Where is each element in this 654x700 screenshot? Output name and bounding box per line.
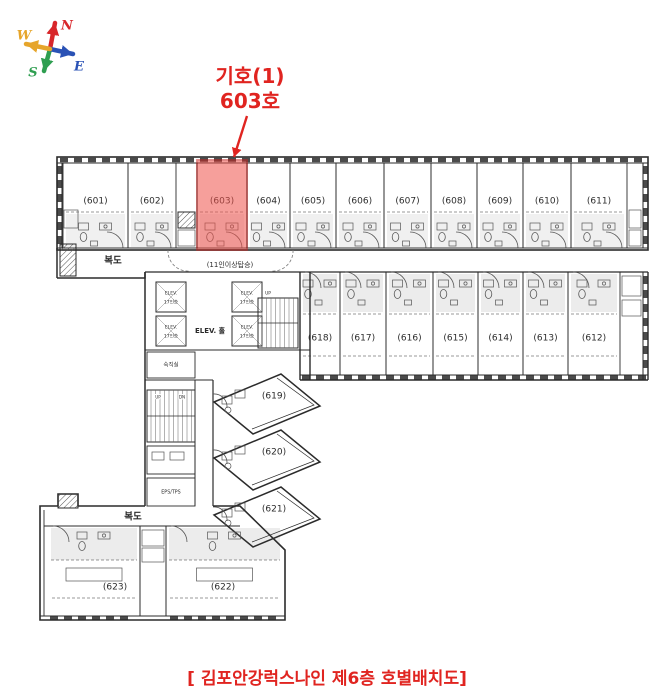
plan-label: (618) — [308, 334, 332, 344]
elevator-capacity-label: 17인승 — [240, 333, 254, 340]
mid-wing: (618)(617)(616)(615)(614)(613)(612) — [300, 272, 648, 380]
plan-label: (620) — [262, 448, 286, 458]
plan-label: (623) — [103, 583, 127, 593]
room-606: (606) — [336, 163, 384, 248]
top-wing: (601)(602)(603)(604)(605)(606)(607)(608)… — [57, 157, 648, 250]
room-620: (620) — [213, 430, 320, 490]
plan-label: (622) — [211, 583, 235, 593]
plan-label: (614) — [488, 334, 512, 344]
service-room: EPS/TPS — [147, 478, 195, 506]
highlighted-room-603 — [197, 160, 247, 250]
room-604: (604) — [247, 163, 290, 248]
room-608: (608) — [431, 163, 477, 248]
annotation-arrow — [234, 116, 247, 157]
plan-label: DN — [179, 395, 185, 400]
plan-label: (607) — [395, 197, 419, 207]
plan-label: (609) — [488, 197, 512, 207]
elevator-car-label: ELEV. — [241, 291, 253, 297]
page-caption: [ 김포안강럭스나인 제6층 호별배치도] — [0, 664, 654, 689]
compass-west-arrow — [26, 44, 50, 49]
room-622: (622) — [169, 526, 280, 598]
highlight-603 — [197, 116, 247, 250]
corridor-label: 복도 — [124, 512, 142, 523]
plan-label: UP — [265, 291, 271, 297]
elevator-capacity-label: 17인승 — [240, 299, 254, 306]
room-605: (605) — [290, 163, 336, 248]
plan-label: (616) — [397, 334, 421, 344]
room-619: (619) — [213, 374, 320, 434]
room-613: (613) — [523, 272, 568, 375]
annotation-line2: 603호 — [188, 89, 312, 114]
plan-label: (610) — [535, 197, 559, 207]
compass-rose: NSEW — [17, 19, 85, 81]
service-room-label: EPS/TPS — [161, 490, 180, 496]
room-615: (615) — [433, 272, 478, 375]
room-623: (623) — [51, 526, 137, 598]
room-610: (610) — [523, 163, 571, 248]
plan-label: (617) — [351, 334, 375, 344]
room-611: (611) — [571, 163, 627, 248]
compass-n-label: N — [60, 19, 74, 34]
plan-label: (602) — [140, 197, 164, 207]
plan-label: (612) — [582, 334, 606, 344]
plan-label: (619) — [262, 392, 286, 402]
room-618: (618) — [300, 272, 340, 375]
elevator-shaft: ELEV.17인승 — [156, 316, 186, 346]
plan-label: (608) — [442, 197, 466, 207]
plan-label: (601) — [83, 197, 107, 207]
floor-plan-drawing: (601)(602)(603)(604)(605)(606)(607)(608)… — [0, 0, 654, 700]
room-602: (602) — [128, 163, 176, 248]
annotation-unit-603: 기호(1) 603호 — [188, 64, 312, 114]
plan-label: (606) — [348, 197, 372, 207]
stair-lower: UPUPDNDN — [147, 390, 195, 442]
elevator-capacity-label: 17인승 — [164, 333, 178, 340]
core: ELEV.17인승ELEV.17인승ELEV.17인승ELEV.17인승ELEV… — [145, 272, 310, 506]
plan-label: (613) — [533, 334, 557, 344]
compass-s-label: S — [28, 66, 37, 81]
room-612: (612) — [568, 272, 620, 375]
room-607: (607) — [384, 163, 431, 248]
room-616: (616) — [386, 272, 433, 375]
plan-label: (615) — [443, 334, 467, 344]
elevator-car-label: ELEV. — [165, 291, 177, 297]
duty-room-label: 숙직실 — [163, 361, 178, 369]
room-609: (609) — [477, 163, 523, 248]
plan-label: (611) — [587, 197, 611, 207]
room-614: (614) — [478, 272, 523, 375]
plan-label: UP — [155, 395, 161, 400]
bottom-wing: 복도(623)(622) — [40, 494, 285, 620]
room-601: (601) — [63, 163, 128, 248]
plan-label: (605) — [301, 197, 325, 207]
annotation-line1: 기호(1) — [188, 64, 312, 89]
elevator-hall-label: ELEV. 홀 — [195, 326, 226, 335]
compass-w-label: W — [17, 29, 33, 44]
duty-room: 숙직실 — [147, 352, 195, 378]
diagonal-rooms: (619)(620)(621) — [213, 374, 320, 547]
elevator-car-label: ELEV. — [241, 325, 253, 331]
corridor-label: 복도 — [104, 256, 122, 267]
stair-upper: UP — [258, 291, 298, 349]
elevator-shaft: ELEV.17인승 — [156, 282, 186, 312]
compass-east-arrow — [50, 49, 73, 54]
plan-label: (604) — [256, 197, 280, 207]
elevator-car-label: ELEV. — [165, 325, 177, 331]
elevator-capacity-label: 17인승 — [164, 299, 178, 306]
compass-e-label: E — [73, 60, 85, 75]
compass-north-arrow — [50, 23, 55, 49]
elevator-note: (11인이상탑승) — [207, 260, 254, 269]
compass-south-arrow — [44, 49, 50, 71]
floorplan-screenshot: (601)(602)(603)(604)(605)(606)(607)(608)… — [0, 0, 654, 700]
room-617: (617) — [340, 272, 386, 375]
plan-label: (621) — [262, 505, 286, 515]
